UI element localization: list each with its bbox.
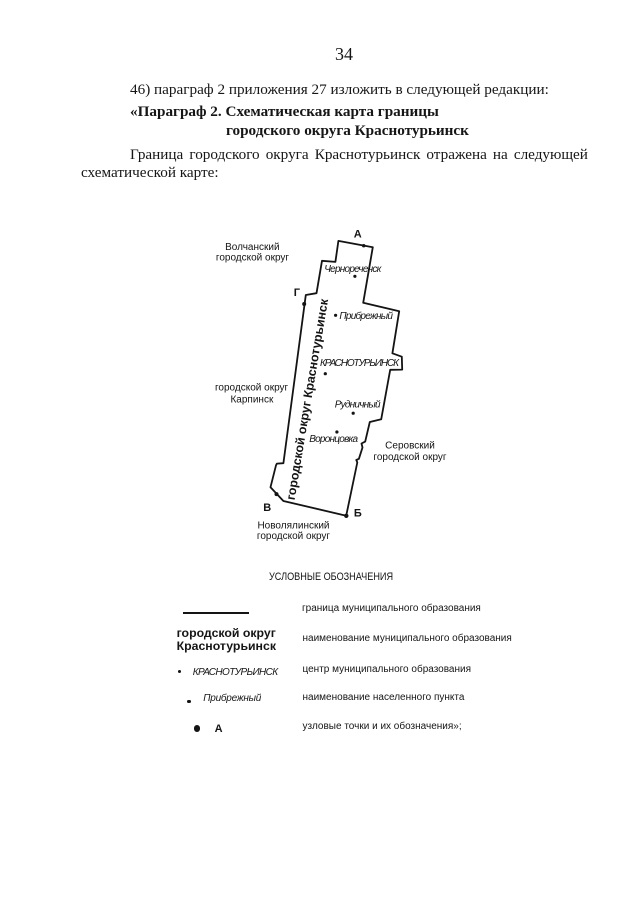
svg-text:городской округ: городской округ [216,252,290,263]
svg-text:Рудничный: Рудничный [335,399,381,410]
svg-text:А: А [354,228,362,240]
svg-text:КРАСНОТУРЬИНСК: КРАСНОТУРЬИНСК [320,358,400,369]
svg-text:городской округ: городской округ [215,382,289,393]
svg-text:Г: Г [294,287,301,299]
svg-text:Воронцовка: Воронцовка [309,434,358,445]
svg-text:Серовский: Серовский [385,440,435,451]
svg-text:В: В [263,502,271,514]
svg-text:Б: Б [354,507,362,519]
svg-text:Чернореченск: Чернореченск [324,264,382,275]
svg-text:городской округ: городской округ [373,452,447,463]
svg-text:Прибрежный: Прибрежный [339,310,393,322]
svg-text:Карпинск: Карпинск [230,394,273,405]
svg-text:городской округ Краснотурьинск: городской округ Краснотурьинск [284,297,332,501]
svg-text:городской округ: городской округ [257,531,331,542]
